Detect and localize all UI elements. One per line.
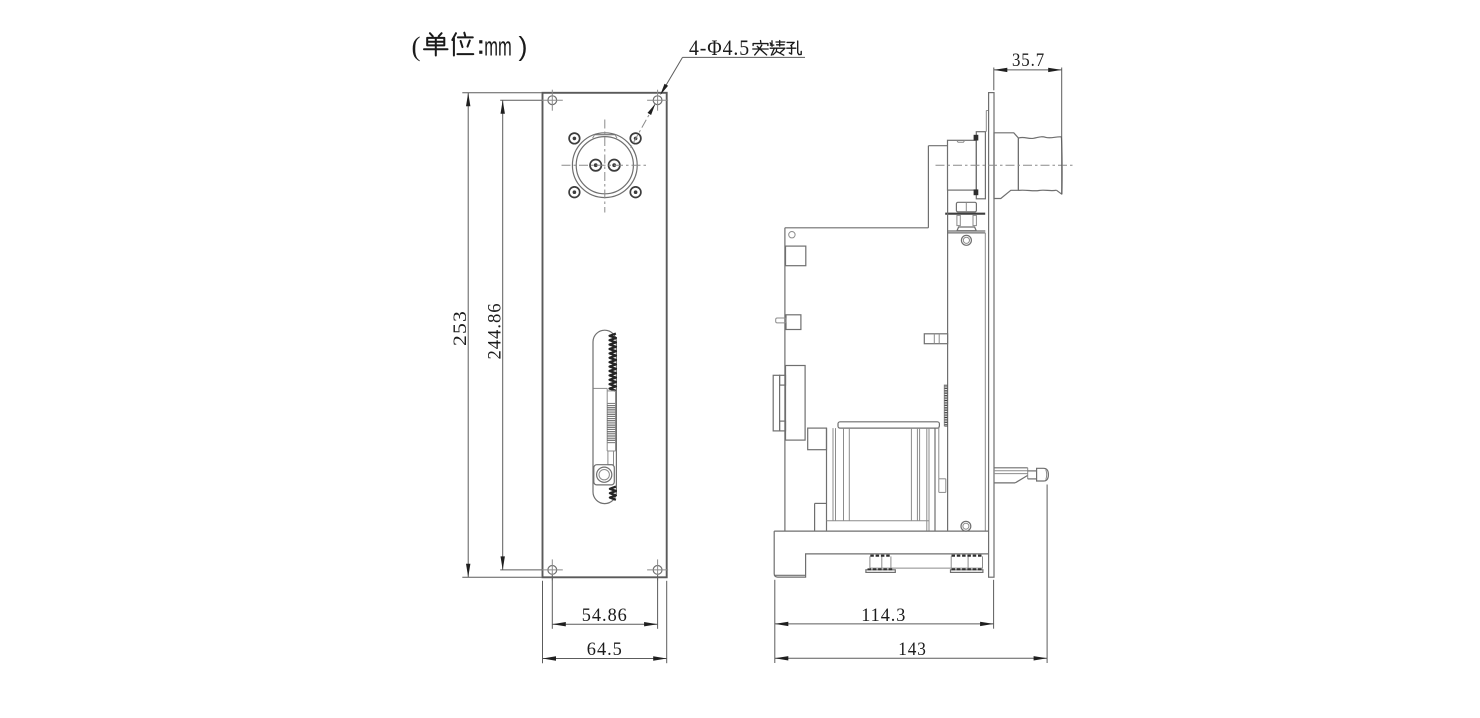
svg-text:64.5: 64.5: [587, 639, 623, 660]
svg-text:54.86: 54.86: [582, 605, 628, 626]
svg-text:35.7: 35.7: [1012, 50, 1045, 71]
svg-text:244.86: 244.86: [484, 303, 505, 360]
svg-text:4-Φ4.5: 4-Φ4.5: [689, 35, 750, 60]
svg-text:143: 143: [898, 639, 927, 660]
svg-text:mm: mm: [484, 32, 512, 62]
svg-text:253: 253: [450, 310, 471, 346]
svg-text:(: (: [412, 32, 422, 62]
svg-text:114.3: 114.3: [861, 605, 906, 626]
svg-text:): ): [519, 32, 528, 62]
